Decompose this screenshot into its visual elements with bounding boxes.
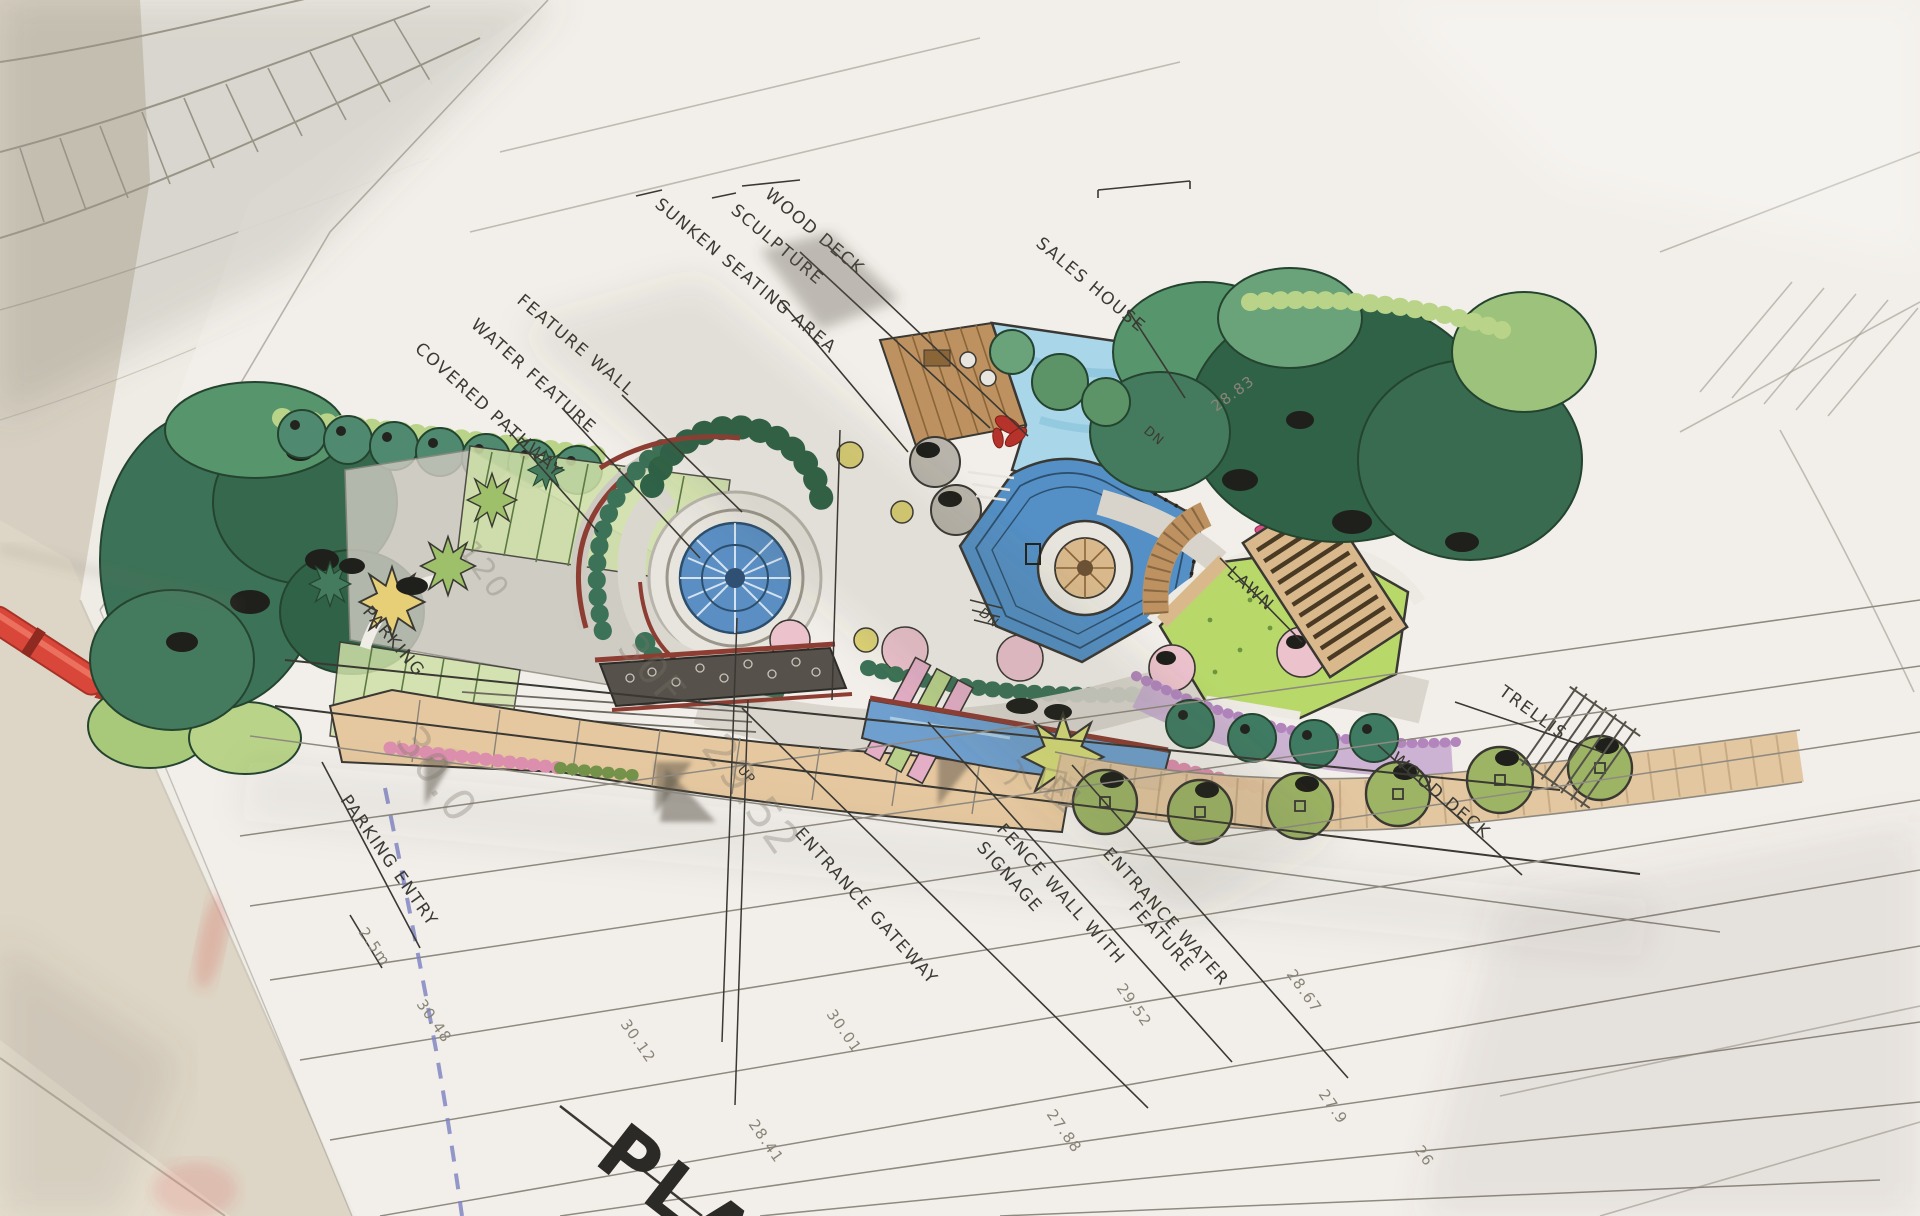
plan-photo-canvas: WOOD DECK SCULPTURE SUNKEN SEATING AREA …: [0, 0, 1920, 1216]
photo-of-landscape-plan: { "scene": { "description": "Photograph …: [0, 0, 1920, 1216]
pen-showthrough-2: [153, 1162, 237, 1216]
